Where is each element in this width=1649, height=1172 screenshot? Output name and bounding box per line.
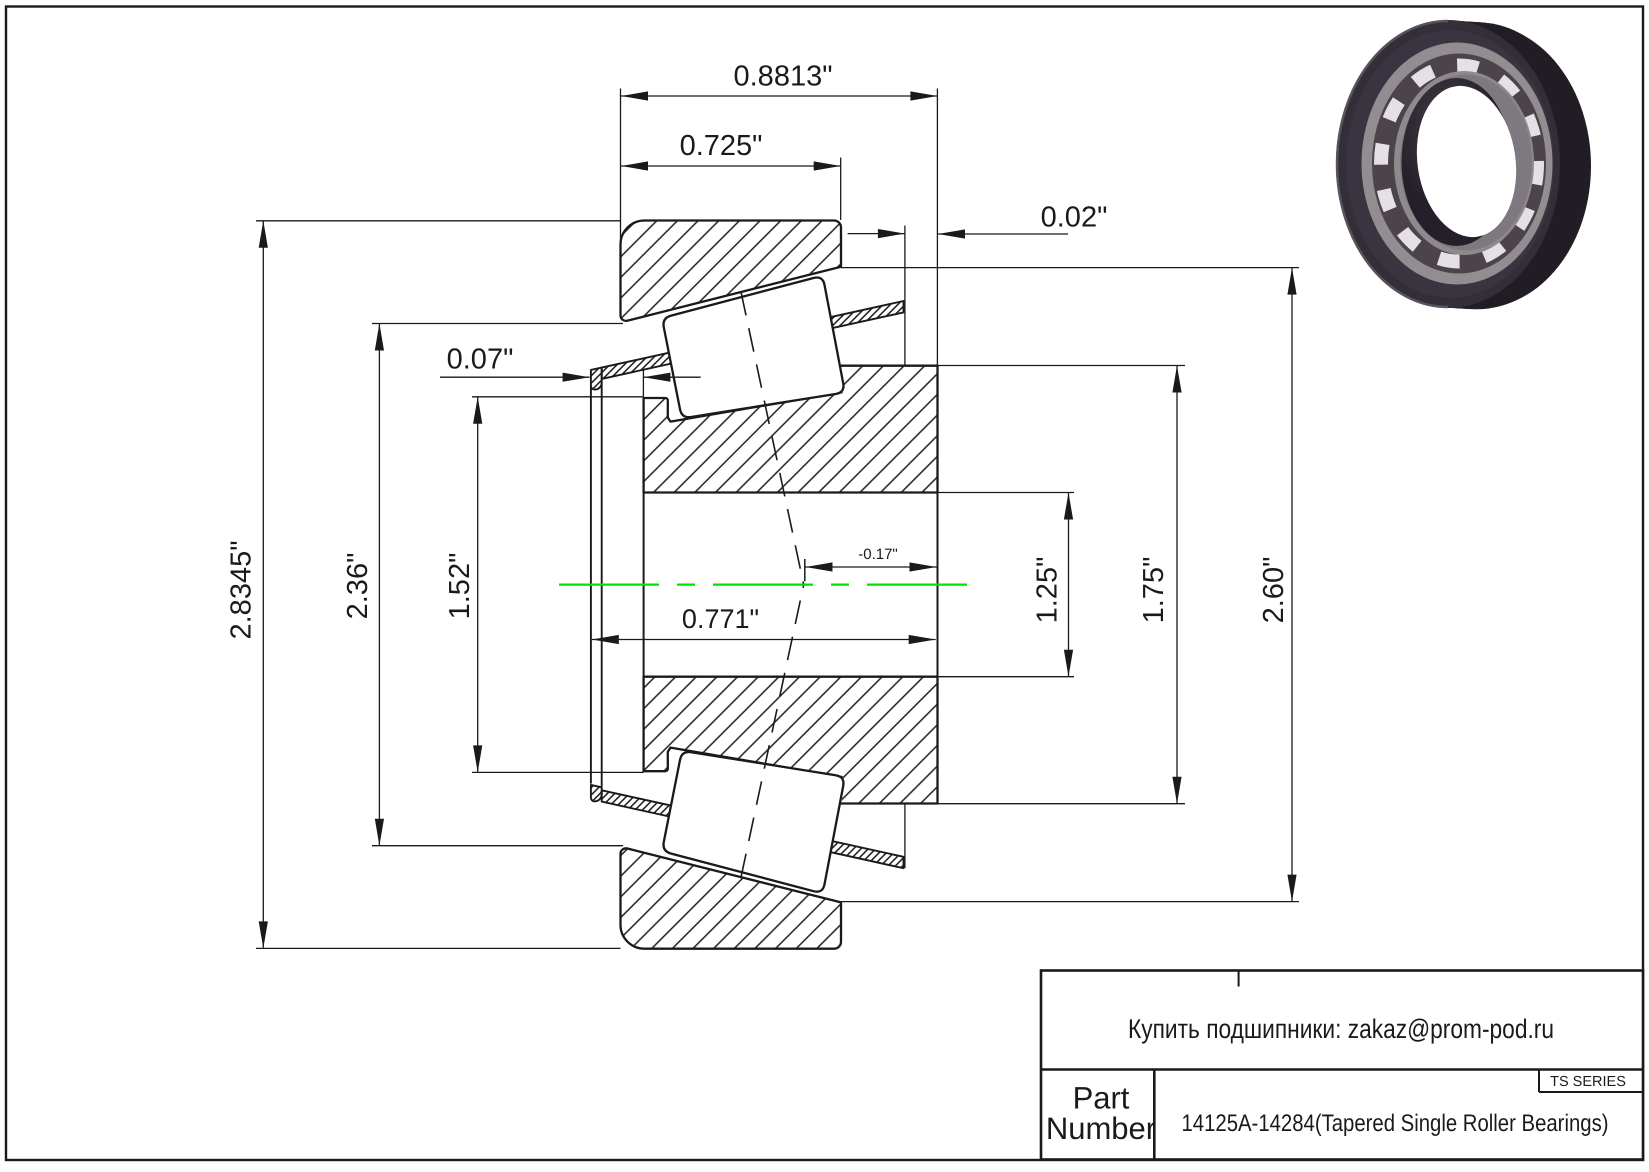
- svg-text:TS SERIES: TS SERIES: [1550, 1074, 1626, 1090]
- svg-text:1.75": 1.75": [1138, 557, 1170, 624]
- svg-text:1.25": 1.25": [1032, 557, 1064, 624]
- svg-text:-0.17": -0.17": [858, 546, 898, 563]
- svg-text:0.8813": 0.8813": [734, 61, 833, 93]
- svg-text:0.02": 0.02": [1041, 202, 1108, 234]
- svg-text:0.771": 0.771": [682, 604, 759, 634]
- svg-text:2.36": 2.36": [342, 553, 374, 620]
- svg-text:14125A-14284(Tapered Single Ro: 14125A-14284(Tapered Single Roller Beari…: [1182, 1110, 1609, 1137]
- svg-text:Number: Number: [1046, 1111, 1156, 1146]
- svg-text:0.725": 0.725": [680, 130, 763, 162]
- svg-text:2.8345": 2.8345": [226, 541, 258, 640]
- svg-text:Купить подшипники: zakaz@prom-: Купить подшипники: zakaz@prom-pod.ru: [1128, 1014, 1554, 1044]
- svg-text:0.07": 0.07": [447, 344, 514, 376]
- svg-text:2.60": 2.60": [1258, 557, 1290, 624]
- svg-text:1.52": 1.52": [444, 553, 476, 620]
